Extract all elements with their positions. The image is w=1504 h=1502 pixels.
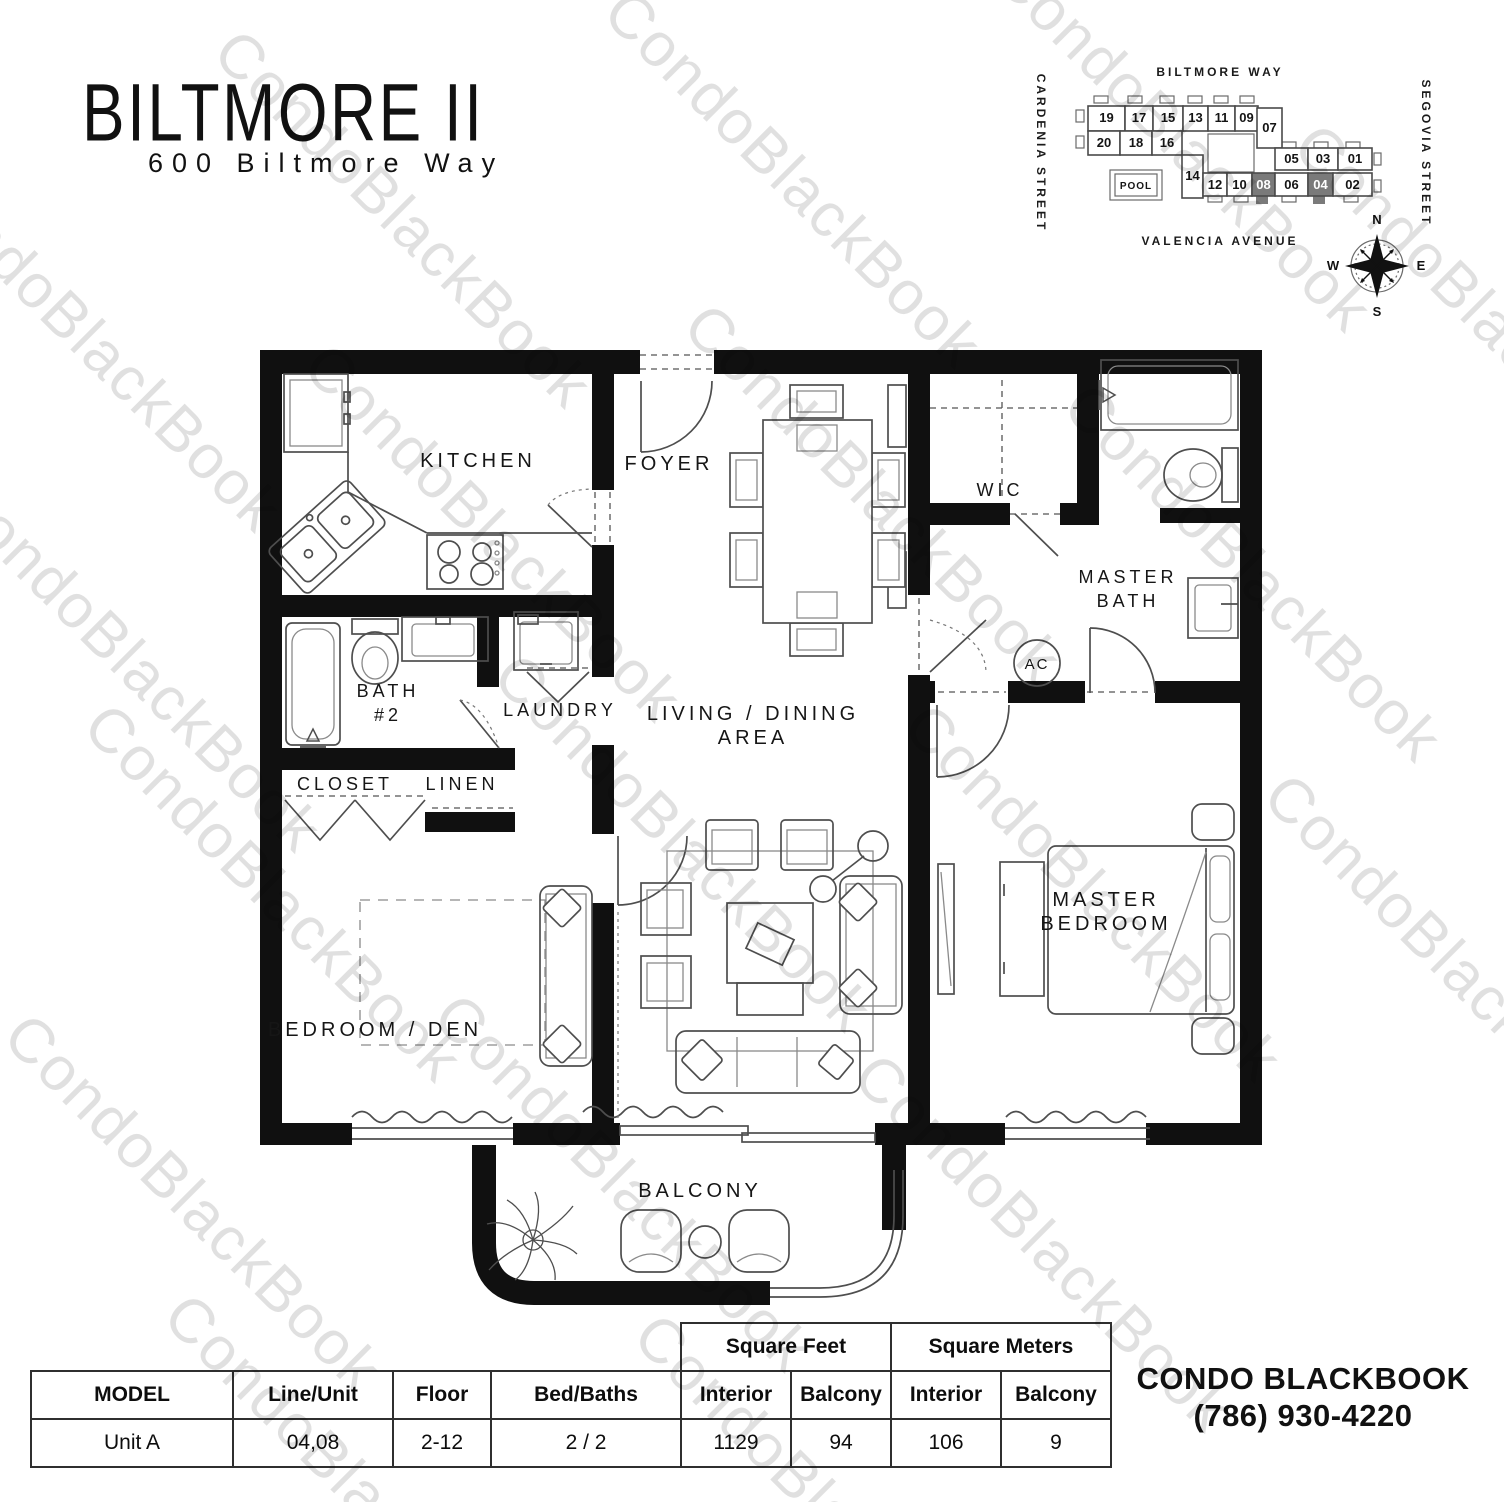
svg-text:LAUNDRY: LAUNDRY [503,700,617,720]
compass-icon: N S E W [1327,212,1426,319]
site-map-unit: 11 [1208,106,1235,131]
site-map-unit-highlighted: 04 [1308,173,1333,196]
table-row: Unit A 04,08 2-12 2 / 2 1129 94 106 9 [31,1419,1111,1467]
cell-sm-balcony: 9 [1001,1419,1111,1467]
svg-text:AREA: AREA [718,727,788,749]
spec-table: Square Feet Square Meters MODEL Line/Uni… [30,1322,1112,1468]
svg-text:19: 19 [1099,110,1113,125]
svg-text:AC: AC [1025,656,1050,673]
master-bath: MASTER BATH [1078,360,1238,638]
svg-text:FOYER: FOYER [625,453,714,475]
svg-text:KITCHEN: KITCHEN [420,450,536,472]
svg-text:12: 12 [1208,177,1222,192]
bath-2: BATH #2 [286,617,488,747]
svg-text:02: 02 [1345,177,1359,192]
col-floor: Floor [393,1371,491,1419]
cell-sf-balcony: 94 [791,1419,891,1467]
group-header-square-feet: Square Feet [681,1323,891,1371]
brand-block: CONDO BLACKBOOK (786) 930-4220 [1122,1360,1484,1434]
site-map: BILTMORE WAY CARDENIA STREET SEGOVIA STR… [1010,58,1490,358]
cell-sf-interior: 1129 [681,1419,791,1467]
site-map-unit: 09 [1235,106,1258,131]
svg-text:MASTER: MASTER [1078,567,1177,587]
cell-floor: 2-12 [393,1419,491,1467]
brand-name: CONDO BLACKBOOK [1122,1360,1484,1397]
group-header-square-meters: Square Meters [891,1323,1111,1371]
svg-text:BATH: BATH [1097,591,1160,611]
svg-text:03: 03 [1316,151,1330,166]
site-map-unit: 05 [1275,148,1308,170]
street-label-bottom: VALENCIA AVENUE [1141,234,1298,248]
svg-text:18: 18 [1129,135,1143,150]
svg-text:05: 05 [1284,151,1298,166]
svg-text:WIC: WIC [977,480,1024,500]
cell-model: Unit A [31,1419,233,1467]
wic: WIC [930,380,1077,500]
site-map-unit: 10 [1227,173,1252,196]
svg-text:#2: #2 [374,705,402,725]
kitchen: KITCHEN [267,374,592,595]
balcony: BALCONY [487,1180,789,1280]
svg-text:09: 09 [1239,110,1253,125]
floor-plan-page: CondoBlackBook CondoBlackBook CondoBlack… [0,0,1504,1502]
site-map-unit: 07 [1257,108,1282,148]
ac-unit: AC [1014,640,1060,686]
col-sm-interior: Interior [891,1371,1001,1419]
svg-text:06: 06 [1284,177,1298,192]
brand-phone: (786) 930-4220 [1122,1397,1484,1434]
svg-text:E: E [1417,258,1426,273]
svg-text:N: N [1372,212,1381,227]
master-bedroom: MASTER BEDROOM [938,804,1234,1054]
living-furniture [641,820,902,1093]
col-sm-balcony: Balcony [1001,1371,1111,1419]
site-map-unit: 18 [1120,131,1152,155]
svg-text:13: 13 [1188,110,1202,125]
col-bed-baths: Bed/Baths [491,1371,681,1419]
site-map-unit: 03 [1308,148,1338,170]
svg-text:16: 16 [1160,135,1174,150]
street-label-left: CARDENIA STREET [1034,74,1048,233]
svg-text:BEDROOM / DEN: BEDROOM / DEN [268,1019,482,1041]
svg-text:17: 17 [1132,110,1146,125]
svg-text:04: 04 [1313,177,1328,192]
site-map-unit: 13 [1183,106,1208,131]
svg-text:LIVING / DINING: LIVING / DINING [647,703,859,725]
svg-text:20: 20 [1097,135,1111,150]
svg-text:POOL: POOL [1120,181,1152,192]
site-map-unit: 19 [1088,106,1125,131]
bedroom-den: BEDROOM / DEN [268,886,592,1066]
svg-text:11: 11 [1215,110,1229,125]
svg-text:08: 08 [1256,177,1270,192]
site-map-unit: 12 [1203,173,1227,196]
site-map-unit: 01 [1338,148,1372,170]
site-map-unit: 14 [1182,155,1203,198]
site-map-unit: 02 [1333,173,1372,196]
site-map-unit: 17 [1125,106,1153,131]
col-sf-balcony: Balcony [791,1371,891,1419]
site-map-unit: 06 [1275,173,1308,196]
closet: CLOSET [297,774,393,794]
svg-text:BATH: BATH [357,681,420,701]
living-dining: LIVING / DINING AREA [647,703,859,749]
street-label-top: BILTMORE WAY [1156,65,1283,79]
dining-set [730,385,905,656]
svg-text:LINEN: LINEN [425,774,498,794]
table-group-header-row: Square Feet Square Meters [31,1323,1111,1371]
cell-bed-baths: 2 / 2 [491,1419,681,1467]
svg-text:CLOSET: CLOSET [297,774,393,794]
linen: LINEN [425,774,498,794]
site-map-unit-highlighted: 08 [1252,173,1275,196]
street-label-right: SEGOVIA STREET [1419,80,1433,227]
cell-sm-interior: 106 [891,1419,1001,1467]
col-line-unit: Line/Unit [233,1371,393,1419]
svg-text:07: 07 [1262,120,1276,135]
svg-text:BEDROOM: BEDROOM [1040,913,1171,935]
site-map-unit: 15 [1153,106,1183,131]
svg-text:15: 15 [1161,110,1175,125]
pool: POOL [1110,170,1162,200]
svg-text:01: 01 [1348,151,1362,166]
svg-text:W: W [1327,258,1340,273]
svg-text:S: S [1373,304,1382,319]
table-header-row: MODEL Line/Unit Floor Bed/Baths Interior… [31,1371,1111,1419]
site-map-unit: 16 [1152,131,1182,155]
svg-text:10: 10 [1232,177,1246,192]
cell-line-unit: 04,08 [233,1419,393,1467]
svg-text:MASTER: MASTER [1052,889,1159,911]
col-model: MODEL [31,1371,233,1419]
svg-text:14: 14 [1185,168,1200,183]
col-sf-interior: Interior [681,1371,791,1419]
site-map-unit: 20 [1088,131,1120,155]
svg-text:BALCONY: BALCONY [638,1180,762,1202]
